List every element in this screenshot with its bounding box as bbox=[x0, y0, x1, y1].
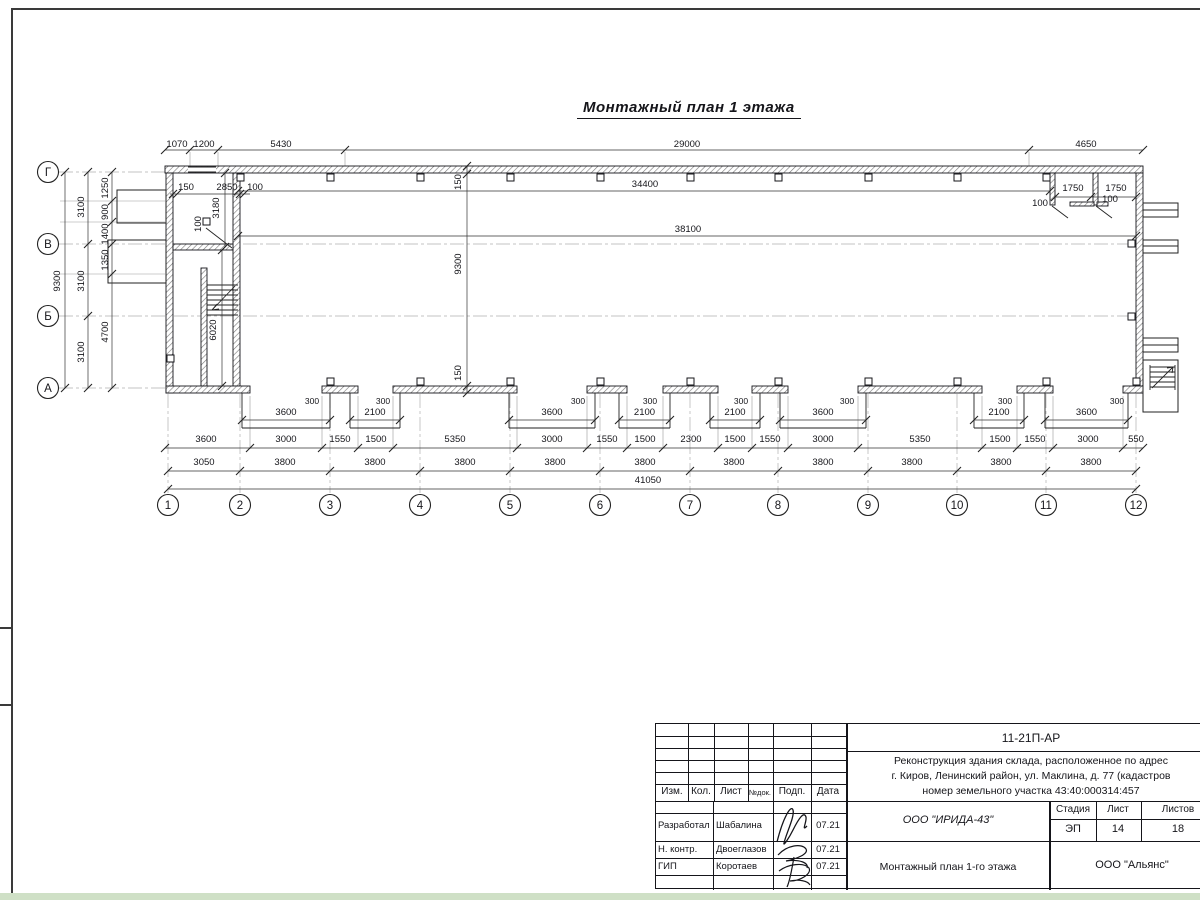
tb-desc-line1: Реконструкция здания склада, расположенн… bbox=[846, 754, 1200, 769]
dim-label: 300 bbox=[840, 396, 854, 406]
dim-label: 300 bbox=[305, 396, 319, 406]
dim-label: 1550 bbox=[596, 434, 617, 445]
dim-label: 300 bbox=[734, 396, 748, 406]
dim-label: 3800 bbox=[812, 457, 833, 468]
dim-label: 900 bbox=[100, 204, 111, 220]
dim-label: 5430 bbox=[270, 139, 291, 150]
tb-desc-line3: номер земельного участка 43:40:000314:45… bbox=[846, 784, 1200, 799]
wall bbox=[752, 386, 788, 393]
page-title: Монтажный план 1 этажа bbox=[577, 99, 801, 119]
dim-label: 300 bbox=[998, 396, 1012, 406]
dim-label: 100 bbox=[247, 182, 263, 193]
wall bbox=[1017, 386, 1053, 393]
drawing-sheet: Монтажный план 1 этажа 36003002100300360… bbox=[0, 0, 1200, 900]
axis-number: 12 bbox=[1130, 500, 1143, 512]
column-marker bbox=[775, 174, 782, 181]
dim-label: 1500 bbox=[365, 434, 386, 445]
dim-label: 3100 bbox=[76, 270, 87, 291]
wall bbox=[322, 386, 358, 393]
dim-label: 3000 bbox=[541, 434, 562, 445]
dim-label: 4700 bbox=[100, 321, 111, 342]
tb-plan-name: Монтажный план 1-го этажа bbox=[880, 861, 1017, 873]
axis-number: 11 bbox=[1040, 500, 1052, 512]
frame-left-line bbox=[11, 8, 13, 900]
wall bbox=[587, 386, 627, 393]
dim-label: 2100 bbox=[988, 407, 1009, 418]
column-marker bbox=[687, 174, 694, 181]
tb-stage-value: ЭП bbox=[1065, 823, 1081, 835]
wall bbox=[663, 386, 718, 393]
column-marker bbox=[237, 174, 244, 181]
tb-sheets-label: Листов bbox=[1162, 804, 1195, 815]
dim-label: 3800 bbox=[454, 457, 475, 468]
wall bbox=[201, 268, 207, 386]
tb-date-2: 07.21 bbox=[816, 844, 840, 855]
dim-label: 3050 bbox=[193, 457, 214, 468]
dim-label: 100 bbox=[193, 216, 204, 232]
dim-label: 3800 bbox=[723, 457, 744, 468]
dim-label: 1500 bbox=[724, 434, 745, 445]
dim-label: 1550 bbox=[1024, 434, 1045, 445]
tb-role-1: Разработал bbox=[658, 820, 710, 831]
dim-label: 300 bbox=[643, 396, 657, 406]
tb-col-data: Дата bbox=[817, 786, 839, 797]
dim-label: 34400 bbox=[632, 179, 658, 190]
tb-col-izm: Изм. bbox=[661, 786, 682, 797]
dim-label: 3800 bbox=[274, 457, 295, 468]
dim-label: 5350 bbox=[909, 434, 930, 445]
column-marker bbox=[597, 174, 604, 181]
tb-project-description: Реконструкция здания склада, расположенн… bbox=[846, 754, 1200, 799]
column-marker bbox=[954, 378, 961, 385]
tb-date-3: 07.21 bbox=[816, 861, 840, 872]
tb-name-1: Шабалина bbox=[716, 820, 762, 831]
dim-label: 150 bbox=[178, 182, 194, 193]
plan-line bbox=[1052, 206, 1068, 218]
dim-label: 3800 bbox=[544, 457, 565, 468]
signature-2 bbox=[774, 841, 811, 888]
wall bbox=[1123, 386, 1143, 393]
dim-label: 1250 bbox=[100, 177, 111, 198]
wall bbox=[1093, 173, 1098, 205]
dim-label: 100 bbox=[1032, 198, 1048, 209]
wall bbox=[165, 166, 1143, 173]
column-marker bbox=[327, 378, 334, 385]
tb-org: ООО "ИРИДА-43" bbox=[903, 814, 994, 826]
wall bbox=[1136, 173, 1143, 393]
wall bbox=[858, 386, 982, 393]
dim-label: 41050 bbox=[635, 475, 661, 486]
dim-label: 3600 bbox=[541, 407, 562, 418]
dim-label: 3100 bbox=[76, 341, 87, 362]
column-marker bbox=[1043, 174, 1050, 181]
dim-label: 300 bbox=[571, 396, 585, 406]
axis-letter: В bbox=[44, 239, 52, 251]
column-marker bbox=[507, 378, 514, 385]
dim-label: 29000 bbox=[674, 139, 700, 150]
dim-label: 2100 bbox=[634, 407, 655, 418]
outline bbox=[1143, 240, 1178, 253]
column-marker bbox=[597, 378, 604, 385]
title-block: Изм. Кол. Лист №док. Подп. Дата Разработ… bbox=[655, 723, 1200, 889]
tb-col-ndok: №док. bbox=[749, 788, 771, 797]
dim-label: 3600 bbox=[812, 407, 833, 418]
tb-role-3: ГИП bbox=[658, 861, 677, 872]
dim-label: 3000 bbox=[275, 434, 296, 445]
tb-stage-label: Стадия bbox=[1056, 804, 1090, 815]
dim-label: 3800 bbox=[990, 457, 1011, 468]
tb-name-2: Двоеглазов bbox=[716, 844, 767, 855]
dim-label: 300 bbox=[1110, 396, 1124, 406]
outline bbox=[117, 190, 166, 223]
column-marker bbox=[327, 174, 334, 181]
signature-1 bbox=[774, 802, 811, 846]
outline bbox=[108, 240, 166, 283]
dim-label: 3600 bbox=[275, 407, 296, 418]
dim-label: 3000 bbox=[812, 434, 833, 445]
dim-label: 150 bbox=[453, 365, 464, 381]
axis-letter: Г bbox=[45, 167, 52, 179]
axis-letter: А bbox=[44, 383, 52, 395]
axis-number: 4 bbox=[417, 500, 424, 512]
dim-label: 3600 bbox=[1076, 407, 1097, 418]
axis-number: 2 bbox=[237, 500, 243, 512]
dim-label: 300 bbox=[376, 396, 390, 406]
dim-label: 3000 bbox=[1077, 434, 1098, 445]
dim-label: 38100 bbox=[675, 224, 701, 235]
dim-label: 1350 bbox=[100, 249, 111, 270]
tb-col-kol: Кол. bbox=[691, 786, 711, 797]
outline bbox=[188, 167, 216, 172]
dim-label: 1750 bbox=[1105, 183, 1126, 194]
dim-label: 1200 bbox=[193, 139, 214, 150]
axis-number: 1 bbox=[165, 500, 171, 512]
dim-label: 1550 bbox=[759, 434, 780, 445]
axis-number: 3 bbox=[327, 500, 333, 512]
dim-label: 100 bbox=[1102, 194, 1118, 205]
column-marker bbox=[687, 378, 694, 385]
dim-label: 1750 bbox=[1062, 183, 1083, 194]
dim-label: 9300 bbox=[453, 253, 464, 274]
column-marker bbox=[954, 174, 961, 181]
dim-label: 6020 bbox=[208, 319, 219, 340]
tb-col-podp: Подп. bbox=[779, 786, 806, 797]
column-marker bbox=[167, 355, 174, 362]
dim-label: 3180 bbox=[211, 197, 222, 218]
axis-number: 7 bbox=[687, 500, 693, 512]
wall bbox=[1070, 202, 1094, 206]
frame-tick-1 bbox=[0, 627, 11, 629]
dim-label: 2100 bbox=[364, 407, 385, 418]
plan-line bbox=[1096, 206, 1112, 218]
tb-company: ООО "Альянс" bbox=[1095, 859, 1169, 871]
dim-label: 1550 bbox=[329, 434, 350, 445]
tb-role-2: Н. контр. bbox=[658, 844, 697, 855]
dim-label: 3800 bbox=[901, 457, 922, 468]
dim-label: 3800 bbox=[1080, 457, 1101, 468]
column-marker bbox=[1128, 240, 1135, 247]
column-marker bbox=[775, 378, 782, 385]
axis-number: 6 bbox=[597, 500, 603, 512]
axis-number: 10 bbox=[951, 500, 964, 512]
tb-col-list: Лист bbox=[720, 786, 742, 797]
tb-sheet-label: Лист bbox=[1107, 804, 1129, 815]
tb-sheet-value: 14 bbox=[1112, 823, 1124, 835]
tb-desc-line2: г. Киров, Ленинский район, ул. Маклина, … bbox=[846, 769, 1200, 784]
scan-edge-strip bbox=[0, 893, 1200, 900]
wall bbox=[233, 173, 240, 386]
column-marker bbox=[417, 174, 424, 181]
column-marker bbox=[1133, 378, 1140, 385]
dim-label: 5350 bbox=[444, 434, 465, 445]
wall bbox=[393, 386, 517, 393]
dim-label: 3800 bbox=[634, 457, 655, 468]
dim-label: 3800 bbox=[364, 457, 385, 468]
frame-top-line bbox=[11, 8, 1200, 10]
axis-letter: Б bbox=[44, 311, 52, 323]
dim-label: 2300 bbox=[680, 434, 701, 445]
tb-date-1: 07.21 bbox=[816, 820, 840, 831]
dim-label: 1500 bbox=[989, 434, 1010, 445]
column-marker bbox=[417, 378, 424, 385]
frame-tick-2 bbox=[0, 704, 11, 706]
axis-number: 5 bbox=[507, 500, 513, 512]
column-marker bbox=[507, 174, 514, 181]
column-marker bbox=[203, 218, 210, 225]
dim-label: 550 bbox=[1128, 434, 1144, 445]
axis-number: 8 bbox=[775, 500, 781, 512]
axis-number: 9 bbox=[865, 500, 871, 512]
dim-label: 2850 bbox=[216, 182, 237, 193]
dim-label: 2100 bbox=[724, 407, 745, 418]
tb-sheets-value: 18 bbox=[1172, 823, 1184, 835]
dim-label: 9300 bbox=[52, 270, 63, 291]
tb-doc-code: 11-21П-АР bbox=[1002, 731, 1060, 745]
dim-label: 150 bbox=[453, 174, 464, 190]
column-marker bbox=[865, 378, 872, 385]
wall bbox=[166, 386, 250, 393]
dim-label: 3600 bbox=[195, 434, 216, 445]
plan-line bbox=[1152, 367, 1173, 388]
dim-label: 1400 bbox=[100, 223, 111, 244]
column-marker bbox=[1128, 313, 1135, 320]
column-marker bbox=[1043, 378, 1050, 385]
dim-label: 1500 bbox=[634, 434, 655, 445]
dim-label: 3100 bbox=[76, 196, 87, 217]
column-marker bbox=[865, 174, 872, 181]
wall bbox=[173, 244, 233, 250]
dim-label: 4650 bbox=[1075, 139, 1096, 150]
tb-name-3: Коротаев bbox=[716, 861, 757, 872]
dim-label: 1070 bbox=[166, 139, 187, 150]
